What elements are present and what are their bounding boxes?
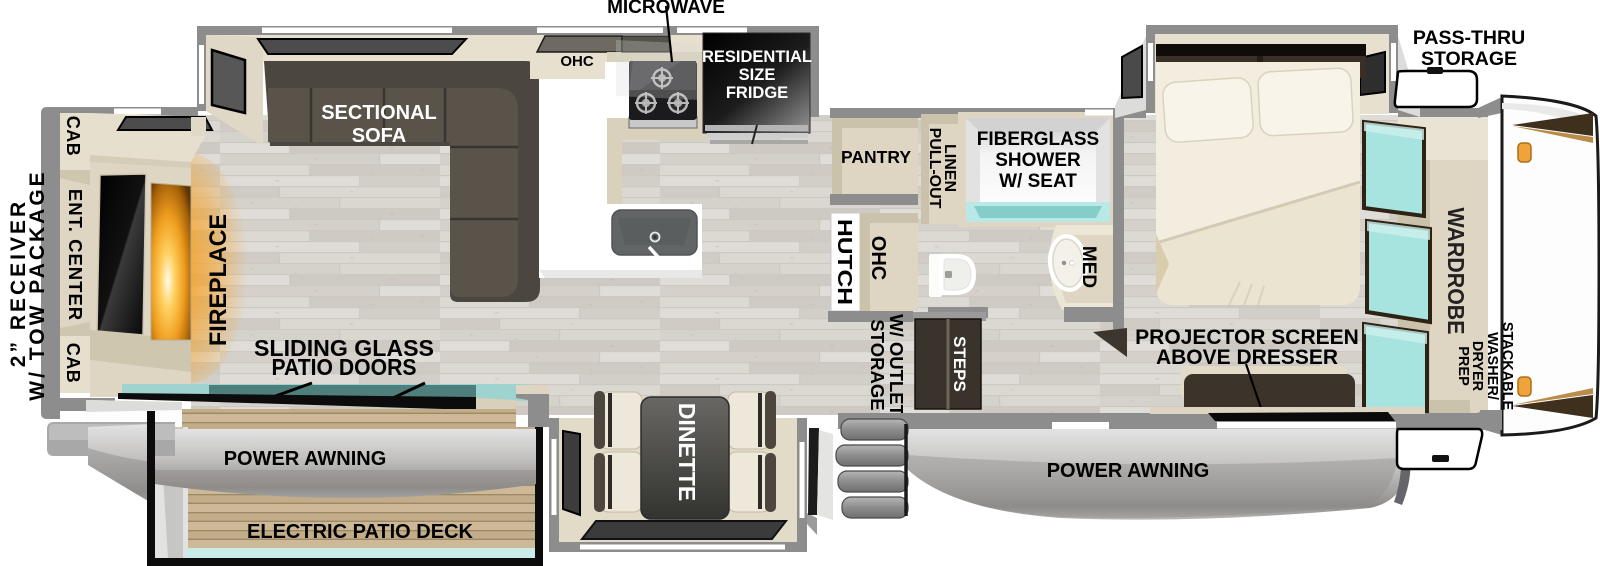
- svg-text:SIZE: SIZE: [739, 66, 776, 84]
- svg-text:W/ OUTLET: W/ OUTLET: [886, 314, 907, 416]
- svg-text:PREP: PREP: [1455, 346, 1471, 386]
- svg-text:LINEN: LINEN: [941, 144, 958, 192]
- svg-text:OHC: OHC: [867, 236, 889, 280]
- svg-text:SOFA: SOFA: [352, 125, 406, 147]
- svg-text:STORAGE: STORAGE: [1421, 48, 1517, 70]
- svg-text:SECTIONAL: SECTIONAL: [321, 102, 437, 124]
- svg-text:ENT. CENTER: ENT. CENTER: [65, 189, 86, 321]
- svg-text:WARDROBE: WARDROBE: [1443, 208, 1469, 335]
- svg-text:STEPS: STEPS: [950, 336, 969, 392]
- svg-text:W/ TOW PACKAGE: W/ TOW PACKAGE: [26, 169, 49, 400]
- svg-text:PASS-THRU: PASS-THRU: [1413, 27, 1525, 49]
- svg-text:RESIDENTIAL: RESIDENTIAL: [702, 48, 812, 66]
- svg-text:FIBERGLASS: FIBERGLASS: [977, 129, 1099, 150]
- svg-text:MICROWAVE: MICROWAVE: [607, 0, 725, 18]
- svg-text:FRIDGE: FRIDGE: [726, 84, 788, 102]
- svg-text:MED: MED: [1078, 246, 1099, 288]
- svg-text:W/ SEAT: W/ SEAT: [999, 171, 1077, 192]
- svg-text:DINETTE: DINETTE: [674, 403, 700, 501]
- svg-text:WASHER/: WASHER/: [1484, 332, 1500, 400]
- svg-text:HUTCH: HUTCH: [833, 219, 855, 305]
- svg-text:CAB: CAB: [63, 343, 83, 384]
- svg-text:PULL-OUT: PULL-OUT: [926, 128, 943, 209]
- svg-text:DRYER: DRYER: [1469, 341, 1485, 392]
- svg-text:CAB: CAB: [63, 116, 83, 157]
- svg-text:ELECTRIC PATIO DECK: ELECTRIC PATIO DECK: [247, 521, 473, 543]
- svg-text:POWER AWNING: POWER AWNING: [1047, 460, 1210, 482]
- svg-text:OHC: OHC: [560, 53, 594, 70]
- svg-text:FIREPLACE: FIREPLACE: [205, 214, 232, 346]
- svg-text:STACKABLE: STACKABLE: [1499, 322, 1515, 411]
- svg-text:PANTRY: PANTRY: [841, 147, 911, 167]
- svg-text:PATIO DOORS: PATIO DOORS: [272, 354, 417, 380]
- svg-text:STORAGE: STORAGE: [867, 319, 888, 410]
- svg-text:POWER AWNING: POWER AWNING: [224, 448, 387, 470]
- svg-text:SHOWER: SHOWER: [995, 150, 1081, 171]
- svg-text:ABOVE DRESSER: ABOVE DRESSER: [1156, 346, 1338, 369]
